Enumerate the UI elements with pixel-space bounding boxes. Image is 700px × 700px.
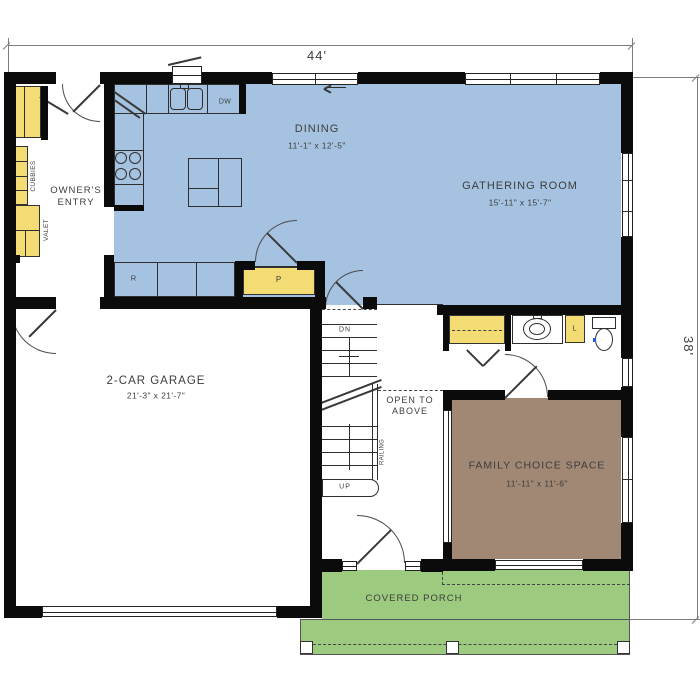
pantry-door-sill bbox=[255, 266, 297, 267]
toilet-bowl bbox=[595, 328, 613, 351]
wall-left bbox=[4, 72, 16, 618]
room-size-garage: 21'-3" x 21'-7" bbox=[127, 391, 185, 402]
wall-garage-bottom bbox=[277, 606, 322, 618]
fixture-label-linen: L bbox=[572, 323, 577, 332]
stair-header-line bbox=[322, 309, 377, 311]
dimension-line-top bbox=[8, 45, 633, 46]
room-label-family-choice: FAMILY CHOICE SPACE bbox=[469, 459, 606, 472]
counter-divider bbox=[196, 262, 197, 297]
room-label-covered-porch: COVERED PORCH bbox=[366, 593, 463, 605]
cooktop-burner bbox=[115, 152, 127, 164]
wall-right bbox=[621, 237, 633, 358]
stair-direction-tick bbox=[339, 356, 359, 357]
wall-family-top bbox=[548, 390, 633, 400]
kitchen-sink-basin bbox=[170, 88, 186, 110]
room-label-dining: DINING bbox=[295, 123, 340, 137]
wall-family-top bbox=[443, 390, 505, 400]
closet-rod-line bbox=[452, 330, 502, 332]
bifold-door-line bbox=[482, 349, 499, 366]
stair-direction-line bbox=[349, 338, 350, 376]
dimension-line-right bbox=[697, 77, 698, 619]
wall-gathering-bottom bbox=[437, 305, 633, 315]
window bbox=[443, 410, 452, 543]
window-mullion bbox=[556, 73, 557, 85]
wall-pantry-side bbox=[315, 261, 325, 305]
window bbox=[172, 66, 202, 84]
porch-post bbox=[446, 641, 459, 654]
wall-kitchen-garage bbox=[100, 297, 326, 309]
room-label-garage: 2-CAR GARAGE bbox=[107, 374, 206, 388]
toilet-flush-mark bbox=[593, 338, 596, 342]
kitchen-faucet bbox=[180, 84, 189, 89]
room-size-gathering: 15'-11" x 15'-7" bbox=[489, 198, 552, 209]
fixture-label-range: R bbox=[131, 273, 137, 282]
wall-valet-stub bbox=[4, 255, 20, 263]
counter-divider bbox=[114, 150, 144, 151]
sidelight-window bbox=[405, 561, 421, 571]
counter-divider bbox=[146, 84, 147, 114]
wall-family-left bbox=[443, 390, 452, 410]
stair-direction-line bbox=[349, 424, 350, 470]
window bbox=[495, 560, 583, 570]
cabinet-divider bbox=[24, 86, 25, 138]
stair-label-down: DN bbox=[337, 327, 353, 336]
room-size-dining: 11'-1" x 12'-5" bbox=[288, 141, 346, 152]
dimension-extension bbox=[633, 77, 700, 78]
window-awning-line bbox=[168, 56, 201, 65]
window bbox=[622, 153, 633, 237]
garage-door bbox=[42, 606, 277, 617]
wall-right bbox=[621, 72, 633, 153]
window-mullion bbox=[622, 180, 633, 181]
wall-closet-side bbox=[443, 313, 449, 351]
wall-top bbox=[358, 72, 465, 84]
window-mullion bbox=[622, 479, 633, 480]
window-mullion bbox=[510, 73, 511, 85]
fixture-label-valet: VALET bbox=[43, 219, 51, 241]
window bbox=[622, 358, 633, 387]
wall-entry-bottom bbox=[421, 559, 443, 572]
porch-post bbox=[617, 641, 630, 654]
wall-pantry-top bbox=[297, 261, 317, 270]
cooktop-burner bbox=[129, 168, 141, 180]
dimension-width-label: 44' bbox=[307, 48, 327, 64]
wall-top bbox=[100, 72, 172, 84]
counter-divider bbox=[114, 184, 144, 185]
sidelight-window bbox=[342, 561, 357, 571]
counter-divider bbox=[207, 84, 208, 114]
wall-owners-kitchen bbox=[104, 255, 114, 297]
wall-kitchen-garage bbox=[4, 297, 56, 309]
porch-floor-step bbox=[300, 619, 630, 655]
wall-family-bottom bbox=[443, 559, 495, 571]
island-divider bbox=[189, 188, 218, 189]
dimension-height-label: 38' bbox=[680, 336, 696, 356]
stair-direction-tick bbox=[339, 452, 359, 453]
counter-end-cap bbox=[114, 205, 144, 211]
window bbox=[465, 73, 600, 85]
direction-arrow-shaft bbox=[326, 87, 346, 88]
kitchen-island bbox=[188, 158, 242, 207]
wall-pantry-side bbox=[235, 261, 243, 305]
cooktop-burner bbox=[129, 152, 141, 164]
room-label-owners-entry: OWNER'S ENTRY bbox=[43, 185, 109, 209]
counter-divider bbox=[157, 262, 158, 297]
counter-divider bbox=[168, 84, 169, 114]
bifold-door-line bbox=[466, 349, 483, 366]
wall-garage-bottom bbox=[4, 606, 42, 618]
room-label-gathering: GATHERING ROOM bbox=[462, 180, 578, 194]
kitchen-sink-basin bbox=[187, 88, 203, 110]
floor-plan: 44' 38' DINING 11'-1" x 12'-5" GATHERING… bbox=[0, 0, 700, 700]
window-mullion bbox=[315, 73, 316, 85]
fixture-label-pantry: P bbox=[276, 275, 282, 285]
stair-label-up: UP bbox=[337, 484, 353, 493]
wall-top bbox=[202, 72, 272, 84]
window-mullion bbox=[622, 211, 633, 212]
porch-post bbox=[300, 641, 313, 654]
island-divider bbox=[218, 159, 219, 206]
cooktop-burner bbox=[115, 168, 127, 180]
wall-entry-bottom bbox=[310, 559, 342, 572]
vanity-sink-inner bbox=[529, 323, 545, 335]
porch-roof-line bbox=[442, 584, 630, 586]
window bbox=[622, 437, 633, 523]
room-label-open-to-above: OPEN TO ABOVE bbox=[381, 395, 439, 418]
wall-closet-side bbox=[505, 313, 511, 351]
cabinet-divider bbox=[25, 230, 26, 257]
fixture-label-dishwasher: DW bbox=[219, 99, 231, 108]
counter-end-cap bbox=[239, 84, 246, 114]
porch-edge-dash bbox=[303, 644, 627, 646]
dimension-extension bbox=[630, 619, 700, 620]
wall-stair-top bbox=[363, 297, 377, 309]
open-above-boundary bbox=[378, 390, 443, 392]
wall-family-bottom bbox=[583, 559, 633, 571]
stair-railing bbox=[372, 384, 378, 480]
fixture-label-railing: RAILING bbox=[379, 439, 387, 465]
fixture-label-cubbies: CUBBIES bbox=[30, 160, 38, 191]
room-size-family-choice: 11'-11" x 11'-6" bbox=[506, 479, 568, 490]
wall-closet-stub bbox=[41, 86, 48, 140]
